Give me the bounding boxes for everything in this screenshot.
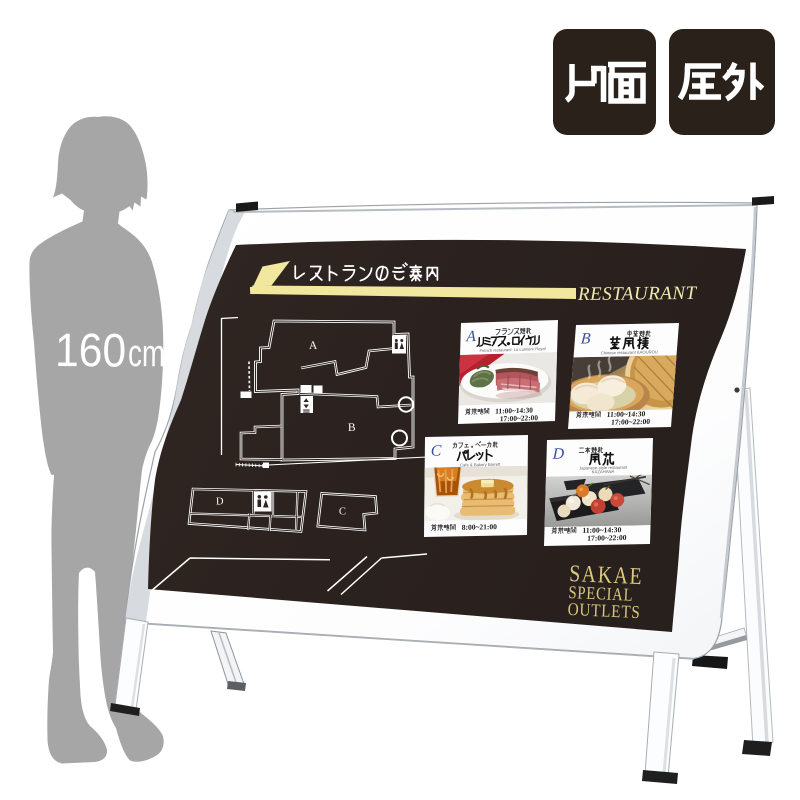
svg-text:160: 160 [55, 323, 126, 376]
svg-text:A: A [309, 340, 318, 352]
svg-text:17:00~22:00: 17:00~22:00 [611, 417, 651, 427]
svg-text:8:00~21:00: 8:00~21:00 [462, 522, 498, 532]
svg-text:C: C [431, 442, 442, 459]
svg-text:RESTAURANT: RESTAURANT [577, 283, 698, 305]
svg-text:C: C [339, 506, 346, 517]
svg-text:D: D [551, 446, 565, 463]
svg-text:17:00~22:00: 17:00~22:00 [500, 413, 539, 423]
svg-text:17:00~22:00: 17:00~22:00 [587, 533, 627, 543]
svg-text:B: B [580, 330, 591, 347]
svg-text:B: B [348, 422, 356, 434]
svg-text:D: D [216, 496, 224, 507]
svg-text:OUTLETS: OUTLETS [567, 599, 641, 622]
svg-text:A: A [465, 328, 476, 345]
svg-text:KAZAHANA: KAZAHANA [592, 469, 615, 474]
svg-text:cm: cm [128, 333, 165, 375]
